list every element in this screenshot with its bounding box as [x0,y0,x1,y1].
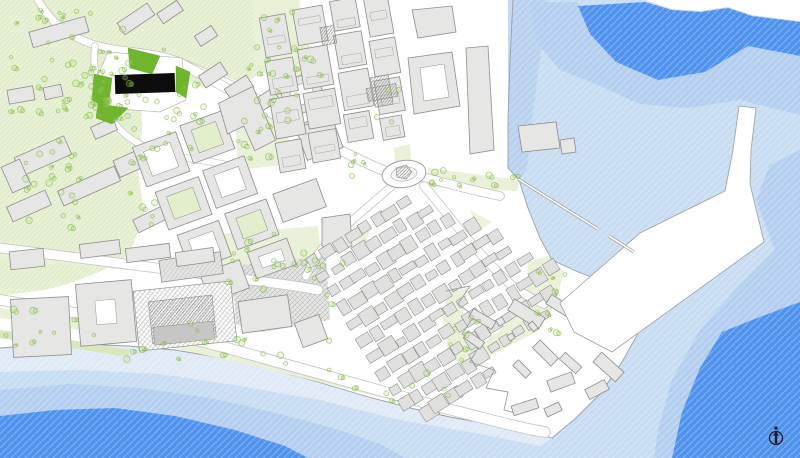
site-plan-map [0,0,800,458]
harbor-building [518,122,560,152]
site-plan-canvas [0,0,800,458]
industrial-hall [238,295,292,334]
blocks-north [253,0,415,173]
harbor-building-small [560,138,576,154]
industrial-yard-block [133,281,237,351]
industrial-hall [11,297,72,358]
small-hall [9,248,45,269]
courtyard [420,64,449,101]
industrial-yard [95,299,117,325]
quay-slab-building [466,46,494,154]
quay-building-small [412,6,456,38]
